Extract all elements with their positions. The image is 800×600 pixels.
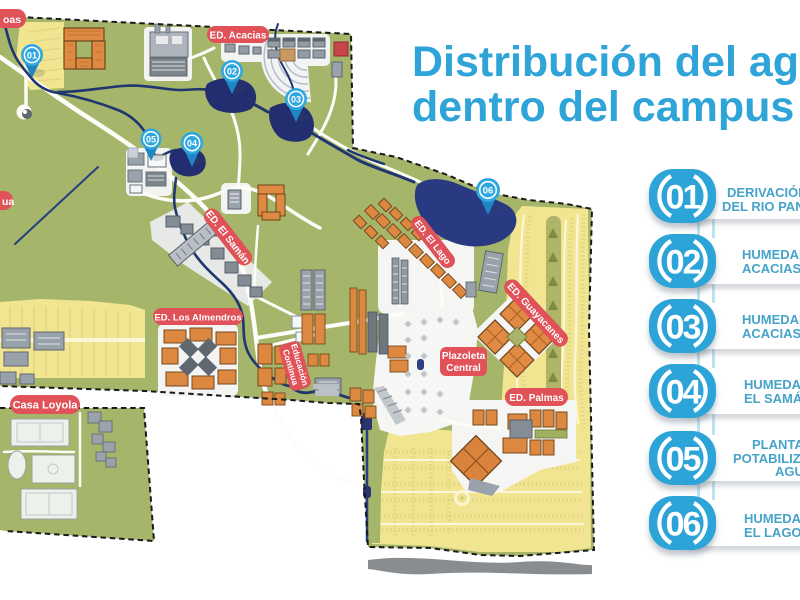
svg-text:01: 01 <box>666 179 701 217</box>
svg-text:02: 02 <box>227 66 237 76</box>
svg-text:Central: Central <box>446 363 481 374</box>
svg-text:04: 04 <box>666 374 702 412</box>
svg-text:Casa Loyola: Casa Loyola <box>13 400 79 412</box>
svg-text:06: 06 <box>483 186 494 197</box>
svg-text:04: 04 <box>187 138 197 148</box>
svg-text:ED. Acacias: ED. Acacias <box>210 31 267 42</box>
svg-text:ED. Palmas: ED. Palmas <box>509 393 564 404</box>
svg-text:Plazoleta: Plazoleta <box>442 351 486 362</box>
svg-text:oas: oas <box>3 14 21 26</box>
svg-text:06: 06 <box>666 506 701 544</box>
svg-text:05: 05 <box>146 134 156 144</box>
svg-text:01: 01 <box>27 50 37 60</box>
svg-text:03: 03 <box>291 94 301 104</box>
svg-text:05: 05 <box>666 441 701 479</box>
svg-text:02: 02 <box>666 244 701 282</box>
svg-text:03: 03 <box>666 309 701 347</box>
svg-text:ED. Los Almendros: ED. Los Almendros <box>154 313 241 324</box>
svg-text:ua: ua <box>2 196 14 208</box>
